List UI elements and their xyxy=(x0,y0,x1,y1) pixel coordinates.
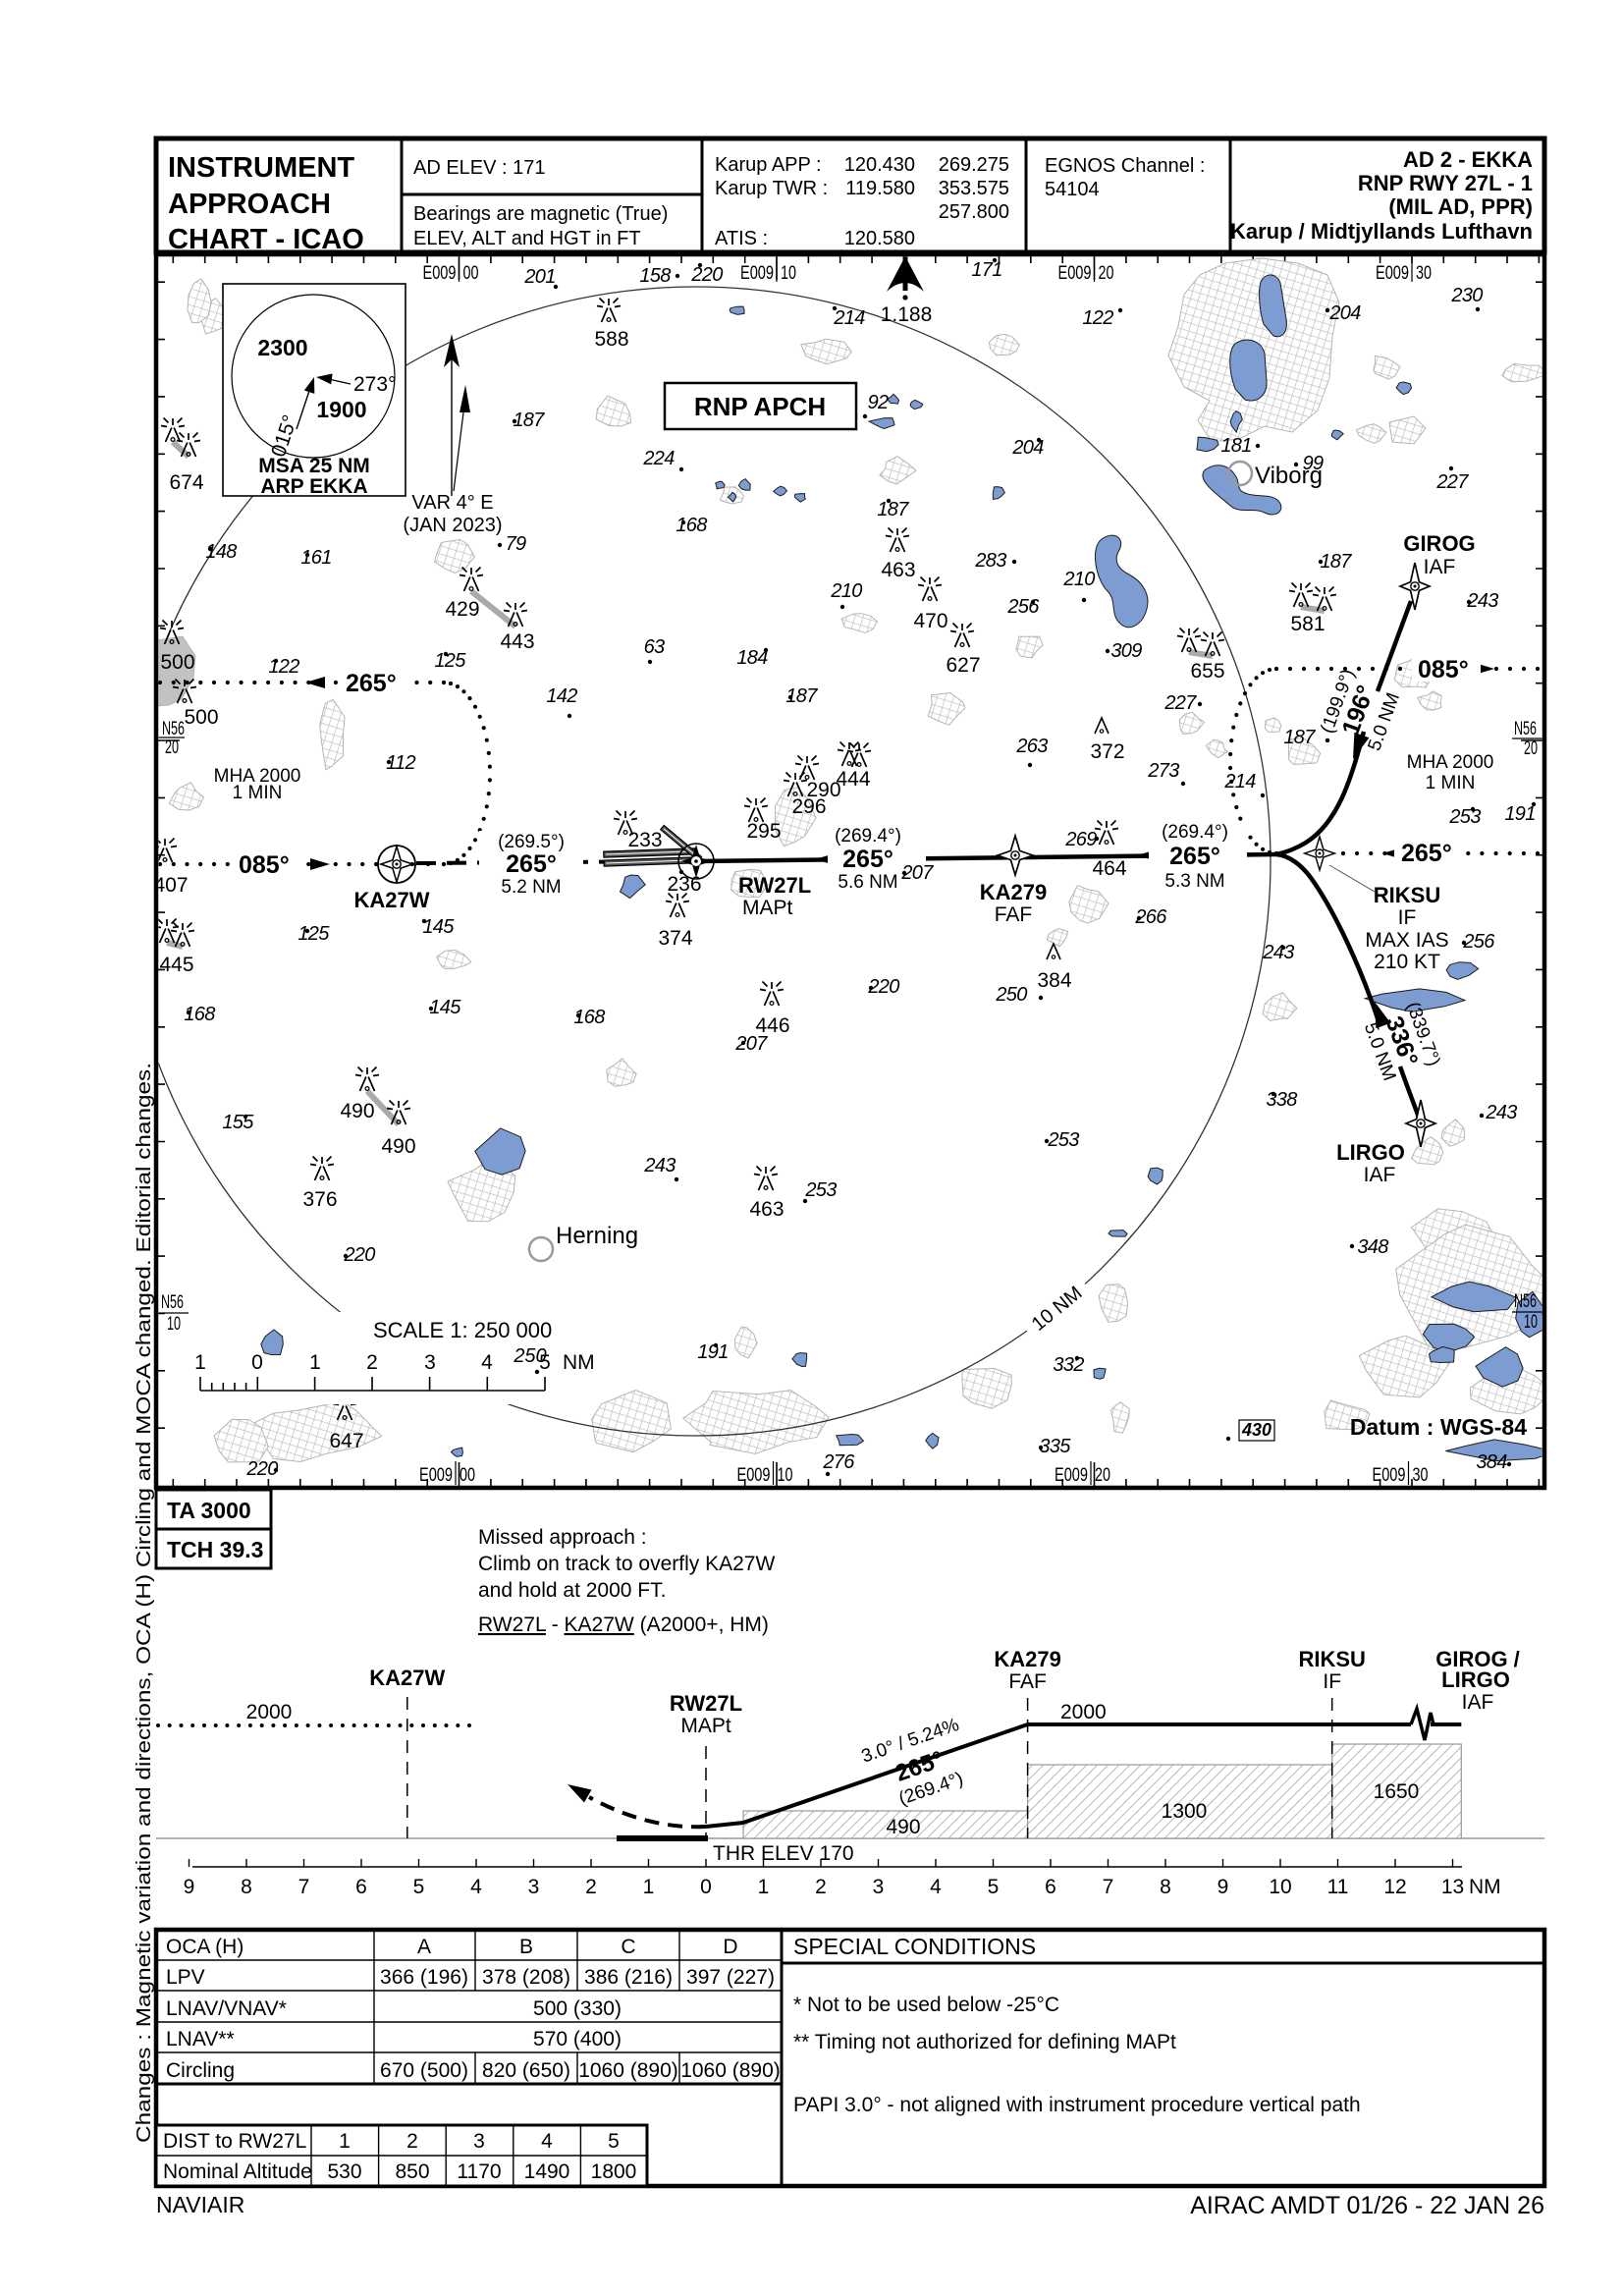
svg-text:430: 430 xyxy=(1241,1420,1271,1440)
svg-text:122: 122 xyxy=(268,656,299,678)
svg-text:E009: E009 xyxy=(423,263,457,284)
svg-text:265°: 265° xyxy=(1169,843,1220,870)
svg-text:TA 3000: TA 3000 xyxy=(167,1498,251,1523)
svg-text:4: 4 xyxy=(541,2130,553,2153)
svg-text:1: 1 xyxy=(194,1351,206,1374)
svg-text:MAPt: MAPt xyxy=(742,897,793,919)
svg-text:253: 253 xyxy=(804,1179,837,1201)
svg-text:1900: 1900 xyxy=(316,397,366,422)
svg-text:8: 8 xyxy=(241,1876,252,1898)
svg-text:10: 10 xyxy=(1269,1876,1291,1898)
svg-text:227: 227 xyxy=(1435,471,1469,493)
svg-text:KA27W: KA27W xyxy=(353,888,429,912)
svg-text:20: 20 xyxy=(1099,263,1114,284)
svg-text:265°: 265° xyxy=(842,846,893,873)
svg-text:3: 3 xyxy=(473,2130,485,2153)
svg-text:LIRGO: LIRGO xyxy=(1336,1140,1405,1165)
svg-text:463: 463 xyxy=(881,559,915,581)
svg-text:SPECIAL CONDITIONS: SPECIAL CONDITIONS xyxy=(793,1934,1036,1959)
svg-text:1.188: 1.188 xyxy=(881,303,933,326)
svg-text:2: 2 xyxy=(585,1876,597,1898)
svg-text:IAF: IAF xyxy=(1424,556,1456,578)
svg-text:145: 145 xyxy=(422,916,455,938)
svg-text:269: 269 xyxy=(1064,829,1097,850)
svg-text:10: 10 xyxy=(167,1314,181,1335)
svg-text:RW27L: RW27L xyxy=(738,873,811,898)
svg-text:2: 2 xyxy=(406,2130,418,2153)
svg-text:2: 2 xyxy=(815,1876,827,1898)
svg-text:674: 674 xyxy=(169,471,203,494)
svg-text:1: 1 xyxy=(339,2130,351,2153)
svg-text:265°: 265° xyxy=(506,850,557,878)
svg-text:386 (216): 386 (216) xyxy=(584,1966,673,1989)
svg-text:243: 243 xyxy=(1466,590,1498,612)
svg-text:500: 500 xyxy=(184,706,218,729)
svg-text:463: 463 xyxy=(749,1198,784,1221)
svg-text:210 KT: 210 KT xyxy=(1374,951,1440,973)
svg-text:5: 5 xyxy=(988,1876,1000,1898)
svg-text:273: 273 xyxy=(1147,760,1179,782)
svg-text:N56: N56 xyxy=(161,1292,184,1313)
svg-text:RIKSU: RIKSU xyxy=(1374,883,1440,907)
svg-text:ARP EKKA: ARP EKKA xyxy=(260,475,367,498)
svg-text:309: 309 xyxy=(1110,640,1142,662)
svg-text:1650: 1650 xyxy=(1374,1780,1420,1803)
svg-text:627: 627 xyxy=(946,654,980,677)
svg-text:APPROACH: APPROACH xyxy=(168,189,331,220)
svg-text:OCA (H): OCA (H) xyxy=(166,1936,243,1958)
svg-text:INSTRUMENT: INSTRUMENT xyxy=(168,152,354,184)
svg-text:3: 3 xyxy=(873,1876,885,1898)
svg-text:372: 372 xyxy=(1090,740,1124,763)
svg-text:191: 191 xyxy=(697,1341,728,1363)
svg-text:187: 187 xyxy=(513,410,545,431)
svg-text:IF: IF xyxy=(1398,906,1417,929)
svg-text:5.3 NM: 5.3 NM xyxy=(1164,871,1224,892)
svg-text:184: 184 xyxy=(736,647,768,669)
svg-text:120.580: 120.580 xyxy=(844,228,915,249)
svg-text:376: 376 xyxy=(302,1188,337,1211)
svg-text:210: 210 xyxy=(830,580,862,602)
svg-text:5: 5 xyxy=(413,1876,425,1898)
svg-text:N56: N56 xyxy=(162,719,185,739)
svg-text:CHART - ICAO: CHART - ICAO xyxy=(168,224,364,255)
svg-text:332: 332 xyxy=(1053,1354,1084,1376)
svg-text:20: 20 xyxy=(1524,738,1538,759)
svg-text:5.6 NM: 5.6 NM xyxy=(838,872,897,893)
svg-text:(MIL AD, PPR): (MIL AD, PPR) xyxy=(1388,194,1533,219)
svg-text:256: 256 xyxy=(1006,596,1040,618)
svg-text:RNP APCH: RNP APCH xyxy=(694,392,826,421)
svg-text:1060 (890): 1060 (890) xyxy=(680,2059,781,2082)
svg-text:(269.4°): (269.4°) xyxy=(835,826,901,847)
svg-text:490: 490 xyxy=(381,1135,415,1158)
svg-text:581: 581 xyxy=(1290,613,1325,635)
svg-text:122: 122 xyxy=(1082,307,1113,329)
svg-text:500 (330): 500 (330) xyxy=(533,1997,622,2020)
svg-text:KA279: KA279 xyxy=(980,880,1047,904)
svg-text:210: 210 xyxy=(1062,569,1095,590)
svg-text:187: 187 xyxy=(877,499,909,520)
svg-text:214: 214 xyxy=(833,307,865,329)
svg-text:E009: E009 xyxy=(1376,263,1409,284)
svg-text:RW27L - KA27W (A2000+, HM): RW27L - KA27W (A2000+, HM) xyxy=(478,1613,769,1636)
svg-text:8: 8 xyxy=(1160,1876,1171,1898)
svg-text:2000: 2000 xyxy=(246,1701,293,1723)
svg-text:Missed approach :: Missed approach : xyxy=(478,1526,647,1549)
svg-text:820 (650): 820 (650) xyxy=(482,2059,570,2082)
svg-text:1 MIN: 1 MIN xyxy=(1426,773,1476,793)
svg-text:E009: E009 xyxy=(1058,263,1092,284)
svg-text:269.275: 269.275 xyxy=(939,154,1009,176)
svg-text:265°: 265° xyxy=(1401,840,1452,867)
svg-text:265°: 265° xyxy=(346,670,397,697)
svg-text:E009: E009 xyxy=(1373,1465,1406,1486)
svg-text:30: 30 xyxy=(1413,1465,1429,1486)
svg-text:92: 92 xyxy=(868,392,889,413)
svg-text:397 (227): 397 (227) xyxy=(686,1966,775,1989)
svg-text:243: 243 xyxy=(643,1155,676,1176)
svg-text:295: 295 xyxy=(746,820,781,843)
svg-text:443: 443 xyxy=(500,630,534,653)
svg-text:7: 7 xyxy=(298,1876,310,1898)
svg-text:10: 10 xyxy=(778,1465,793,1486)
svg-text:445: 445 xyxy=(159,954,193,976)
svg-text:AIRAC AMDT 01/26 - 22 JAN 26: AIRAC AMDT 01/26 - 22 JAN 26 xyxy=(1190,2192,1544,2219)
svg-text:444: 444 xyxy=(836,768,870,791)
svg-text:00: 00 xyxy=(460,1465,475,1486)
svg-text:655: 655 xyxy=(1190,660,1224,683)
svg-text:374: 374 xyxy=(658,927,692,950)
svg-text:N56: N56 xyxy=(1514,1291,1537,1312)
svg-text:IF: IF xyxy=(1323,1670,1341,1693)
svg-text:ATIS :: ATIS : xyxy=(715,228,768,249)
svg-text:490: 490 xyxy=(886,1816,920,1838)
svg-text:LIRGO: LIRGO xyxy=(1441,1667,1510,1692)
svg-text:142: 142 xyxy=(546,685,577,707)
svg-text:Changes : Magnetic variation a: Changes : Magnetic variation and directi… xyxy=(134,1063,155,2143)
svg-text:B: B xyxy=(519,1936,533,1958)
svg-text:158: 158 xyxy=(639,265,671,287)
svg-text:** Timing not authorized for d: ** Timing not authorized for defining MA… xyxy=(793,2031,1176,2053)
svg-text:155: 155 xyxy=(222,1112,254,1133)
svg-text:253: 253 xyxy=(1448,806,1481,828)
svg-text:670 (500): 670 (500) xyxy=(380,2059,468,2082)
svg-text:TCH 39.3: TCH 39.3 xyxy=(167,1537,263,1562)
svg-text:257.800: 257.800 xyxy=(939,201,1009,223)
svg-text:(269.5°): (269.5°) xyxy=(498,832,565,852)
svg-text:1: 1 xyxy=(758,1876,770,1898)
svg-text:1: 1 xyxy=(309,1351,321,1374)
svg-text:N56: N56 xyxy=(1514,719,1537,739)
svg-text:MAX IAS: MAX IAS xyxy=(1365,929,1448,952)
svg-text:SCALE 1: 250 000: SCALE 1: 250 000 xyxy=(373,1318,552,1342)
svg-text:263: 263 xyxy=(1015,736,1048,757)
svg-text:3: 3 xyxy=(528,1876,540,1898)
svg-text:MHA 2000: MHA 2000 xyxy=(1407,752,1494,773)
svg-text:Karup TWR :: Karup TWR : xyxy=(715,178,828,199)
svg-text:13: 13 xyxy=(1441,1876,1464,1898)
svg-text:FAF: FAF xyxy=(995,903,1033,926)
svg-text:12: 12 xyxy=(1383,1876,1406,1898)
svg-text:LPV: LPV xyxy=(166,1966,205,1989)
svg-text:E009: E009 xyxy=(737,1465,771,1486)
svg-text:0: 0 xyxy=(700,1876,712,1898)
svg-text:C: C xyxy=(621,1936,635,1958)
svg-text:RNP RWY 27L - 1: RNP RWY 27L - 1 xyxy=(1358,171,1533,195)
svg-text:384: 384 xyxy=(1037,969,1071,992)
svg-text:353.575: 353.575 xyxy=(939,178,1009,199)
svg-text:E009: E009 xyxy=(740,263,774,284)
svg-text:220: 220 xyxy=(343,1244,375,1266)
svg-text:207: 207 xyxy=(734,1033,768,1055)
svg-text:384: 384 xyxy=(1476,1451,1507,1473)
svg-text:085°: 085° xyxy=(1418,656,1469,683)
svg-text:296: 296 xyxy=(791,795,826,818)
svg-text:250: 250 xyxy=(513,1345,546,1367)
svg-text:RIKSU: RIKSU xyxy=(1298,1647,1365,1671)
svg-text:LNAV/VNAV*: LNAV/VNAV* xyxy=(166,1997,287,2020)
svg-text:10: 10 xyxy=(781,263,796,284)
svg-text:224: 224 xyxy=(642,448,675,469)
svg-text:647: 647 xyxy=(329,1430,363,1452)
svg-text:Karup / Midtjyllands Lufthavn: Karup / Midtjyllands Lufthavn xyxy=(1230,219,1533,244)
svg-text:181: 181 xyxy=(1220,435,1251,457)
svg-text:2: 2 xyxy=(366,1351,378,1374)
svg-text:256: 256 xyxy=(1462,931,1495,953)
svg-text:1 MIN: 1 MIN xyxy=(233,783,283,803)
svg-text:253: 253 xyxy=(1047,1129,1079,1151)
svg-text:366 (196): 366 (196) xyxy=(380,1966,468,1989)
svg-text:187: 187 xyxy=(1283,727,1316,748)
svg-text:GIROG: GIROG xyxy=(1403,531,1475,556)
svg-text:407: 407 xyxy=(153,874,188,897)
svg-text:191: 191 xyxy=(1504,803,1535,825)
svg-text:LNAV**: LNAV** xyxy=(166,2028,235,2050)
svg-text:and hold at 2000 FT.: and hold at 2000 FT. xyxy=(478,1579,666,1602)
svg-text:KA279: KA279 xyxy=(994,1647,1060,1671)
svg-text:99: 99 xyxy=(1303,453,1324,474)
svg-text:* Not to be used below -25°C: * Not to be used below -25°C xyxy=(793,1994,1059,2016)
svg-text:20: 20 xyxy=(165,738,179,758)
svg-text:570 (400): 570 (400) xyxy=(533,2028,622,2050)
svg-text:ELEV, ALT and HGT in FT: ELEV, ALT and HGT in FT xyxy=(413,228,641,249)
svg-text:THR ELEV 170: THR ELEV 170 xyxy=(713,1842,854,1865)
svg-text:9: 9 xyxy=(1217,1876,1229,1898)
svg-text:KA27W: KA27W xyxy=(369,1666,445,1690)
svg-text:6: 6 xyxy=(1045,1876,1056,1898)
svg-text:20: 20 xyxy=(1095,1465,1110,1486)
svg-text:168: 168 xyxy=(676,515,707,536)
svg-text:187: 187 xyxy=(1320,551,1352,573)
svg-text:470: 470 xyxy=(913,610,947,632)
svg-text:171: 171 xyxy=(971,259,1001,281)
svg-text:273°: 273° xyxy=(353,373,396,396)
svg-text:236: 236 xyxy=(667,873,701,896)
svg-text:Karup APP :: Karup APP : xyxy=(715,154,822,176)
svg-text:(JAN 2023): (JAN 2023) xyxy=(403,515,502,536)
svg-text:MAPt: MAPt xyxy=(680,1715,731,1737)
svg-text:5: 5 xyxy=(608,2130,620,2153)
svg-text:E009: E009 xyxy=(419,1465,453,1486)
svg-text:RW27L: RW27L xyxy=(670,1691,742,1716)
svg-text:E009: E009 xyxy=(1055,1465,1088,1486)
svg-text:378 (208): 378 (208) xyxy=(482,1966,570,1989)
svg-text:NM: NM xyxy=(563,1351,595,1374)
svg-text:Nominal Altitude: Nominal Altitude xyxy=(163,2160,312,2183)
svg-text:11: 11 xyxy=(1327,1876,1349,1898)
svg-text:850: 850 xyxy=(395,2160,429,2183)
svg-text:NM: NM xyxy=(1469,1876,1501,1898)
svg-text:125: 125 xyxy=(434,650,466,672)
svg-text:2000: 2000 xyxy=(1060,1701,1107,1723)
svg-text:429: 429 xyxy=(445,598,479,621)
svg-text:1800: 1800 xyxy=(591,2160,637,2183)
svg-text:243: 243 xyxy=(1485,1102,1517,1123)
svg-text:00: 00 xyxy=(463,263,479,284)
svg-text:500: 500 xyxy=(160,651,194,674)
svg-text:490: 490 xyxy=(340,1100,374,1122)
svg-text:5.2 NM: 5.2 NM xyxy=(501,877,561,898)
svg-text:3: 3 xyxy=(424,1351,436,1374)
svg-text:145: 145 xyxy=(429,997,461,1018)
svg-text:276: 276 xyxy=(822,1451,855,1473)
svg-text:DIST to RW27L: DIST to RW27L xyxy=(163,2130,306,2153)
svg-text:(269.4°): (269.4°) xyxy=(1162,822,1228,843)
svg-text:4: 4 xyxy=(481,1351,493,1374)
svg-text:227: 227 xyxy=(1163,692,1197,714)
svg-text:FAF: FAF xyxy=(1008,1670,1047,1693)
svg-text:2300: 2300 xyxy=(257,335,307,360)
svg-text:A: A xyxy=(417,1936,431,1958)
svg-text:204: 204 xyxy=(1328,302,1361,324)
svg-text:1300: 1300 xyxy=(1162,1800,1208,1823)
svg-text:588: 588 xyxy=(594,328,628,351)
svg-text:220: 220 xyxy=(690,264,723,286)
svg-text:6: 6 xyxy=(355,1876,367,1898)
svg-text:250: 250 xyxy=(995,984,1027,1006)
svg-text:NAVIAIR: NAVIAIR xyxy=(156,2192,244,2217)
svg-text:125: 125 xyxy=(298,923,330,945)
svg-text:63: 63 xyxy=(644,636,665,658)
svg-text:4: 4 xyxy=(930,1876,942,1898)
svg-text:243: 243 xyxy=(1262,942,1294,963)
svg-text:085°: 085° xyxy=(239,851,290,879)
svg-text:Herning: Herning xyxy=(556,1223,638,1249)
svg-text:EGNOS Channel :: EGNOS Channel : xyxy=(1045,155,1205,177)
svg-text:1490: 1490 xyxy=(524,2160,570,2183)
svg-text:AD ELEV : 171: AD ELEV : 171 xyxy=(413,157,546,179)
svg-text:1: 1 xyxy=(643,1876,655,1898)
svg-text:Circling: Circling xyxy=(166,2059,235,2082)
svg-text:10: 10 xyxy=(1524,1312,1538,1333)
svg-text:PAPI 3.0° - not aligned with i: PAPI 3.0° - not aligned with instrument … xyxy=(793,2094,1361,2116)
svg-text:338: 338 xyxy=(1266,1089,1297,1111)
svg-text:348: 348 xyxy=(1357,1236,1388,1258)
svg-text:1060 (890): 1060 (890) xyxy=(578,2059,678,2082)
svg-text:119.580: 119.580 xyxy=(845,178,915,199)
svg-text:464: 464 xyxy=(1092,857,1126,880)
svg-text:335: 335 xyxy=(1039,1436,1071,1457)
svg-text:4: 4 xyxy=(470,1876,482,1898)
svg-text:30: 30 xyxy=(1416,263,1432,284)
svg-text:1170: 1170 xyxy=(457,2160,501,2183)
svg-text:148: 148 xyxy=(205,541,237,563)
svg-text:IAF: IAF xyxy=(1364,1164,1396,1186)
svg-text:233: 233 xyxy=(627,829,662,851)
svg-text:230: 230 xyxy=(1450,285,1483,306)
svg-text:9: 9 xyxy=(184,1876,195,1898)
svg-text:7: 7 xyxy=(1103,1876,1114,1898)
svg-text:161: 161 xyxy=(300,547,331,569)
svg-text:0: 0 xyxy=(251,1351,263,1374)
svg-text:Climb on track to overfly KA27: Climb on track to overfly KA27W xyxy=(478,1553,775,1575)
svg-text:79: 79 xyxy=(506,533,526,555)
svg-text:VAR 4° E: VAR 4° E xyxy=(411,492,493,514)
svg-text:54104: 54104 xyxy=(1045,179,1100,200)
svg-text:214: 214 xyxy=(1223,771,1256,793)
svg-text:IAF: IAF xyxy=(1462,1691,1494,1714)
svg-text:Bearings are magnetic (True): Bearings are magnetic (True) xyxy=(413,203,668,225)
svg-text:220: 220 xyxy=(245,1458,278,1480)
svg-text:201: 201 xyxy=(523,266,555,288)
svg-text:D: D xyxy=(723,1936,737,1958)
svg-text:Datum : WGS-84: Datum : WGS-84 xyxy=(1350,1414,1527,1440)
svg-text:MSA 25 NM: MSA 25 NM xyxy=(258,455,370,477)
svg-text:283: 283 xyxy=(974,550,1006,572)
svg-text:AD 2 - EKKA: AD 2 - EKKA xyxy=(1403,147,1533,172)
svg-text:530: 530 xyxy=(327,2160,361,2183)
svg-text:120.430: 120.430 xyxy=(844,154,915,176)
